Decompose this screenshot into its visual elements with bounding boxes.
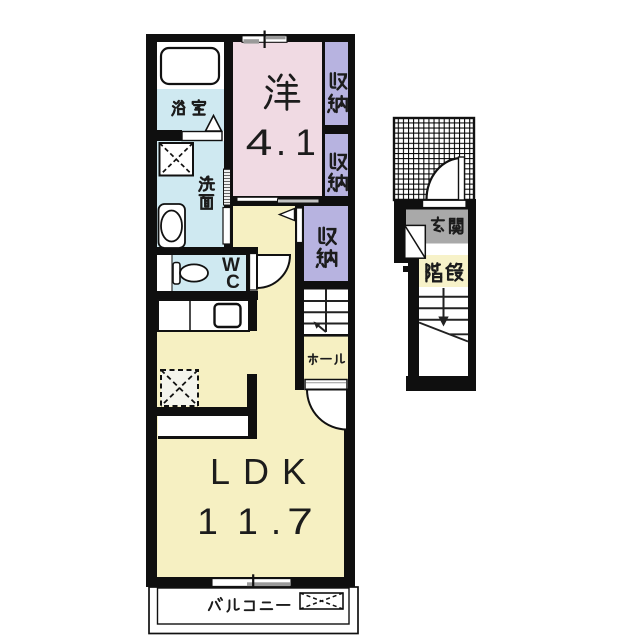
svg-text:1: 1 xyxy=(197,501,218,542)
svg-text:LDK: LDK xyxy=(210,451,319,492)
svg-text:1: 1 xyxy=(295,122,316,163)
svg-text:.: . xyxy=(276,122,286,163)
svg-text:C: C xyxy=(226,272,240,293)
svg-text:7: 7 xyxy=(287,500,313,542)
svg-text:4: 4 xyxy=(246,122,273,163)
svg-text:.: . xyxy=(271,501,281,542)
svg-text:1: 1 xyxy=(237,501,258,542)
